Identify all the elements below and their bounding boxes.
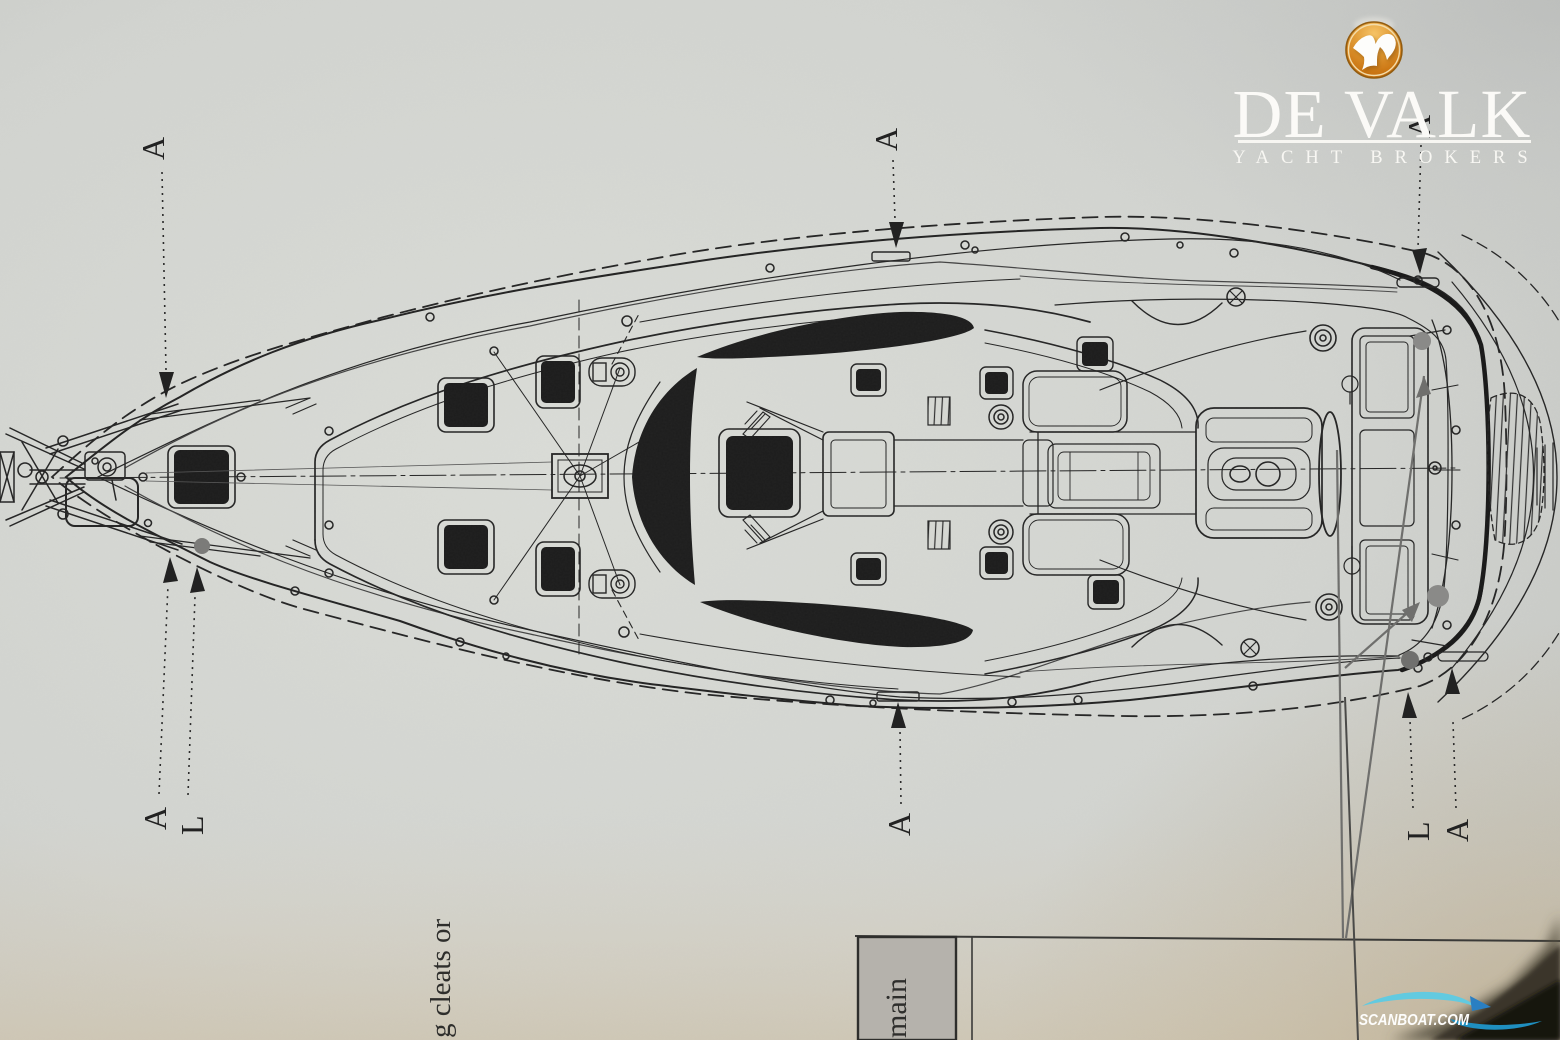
svg-text:main: main (880, 978, 913, 1038)
svg-text:SCANBOAT.COM: SCANBOAT.COM (1359, 1012, 1470, 1029)
svg-text:A: A (868, 128, 904, 151)
svg-text:YACHT BROKERS: YACHT BROKERS (1232, 148, 1539, 168)
svg-text:A: A (881, 813, 917, 836)
svg-text:g cleats or: g cleats or (425, 918, 457, 1038)
svg-text:L: L (174, 815, 210, 835)
svg-text:A: A (137, 807, 173, 830)
svg-text:A: A (1439, 819, 1475, 842)
svg-text:L: L (1400, 821, 1436, 841)
svg-text:A: A (135, 137, 171, 160)
